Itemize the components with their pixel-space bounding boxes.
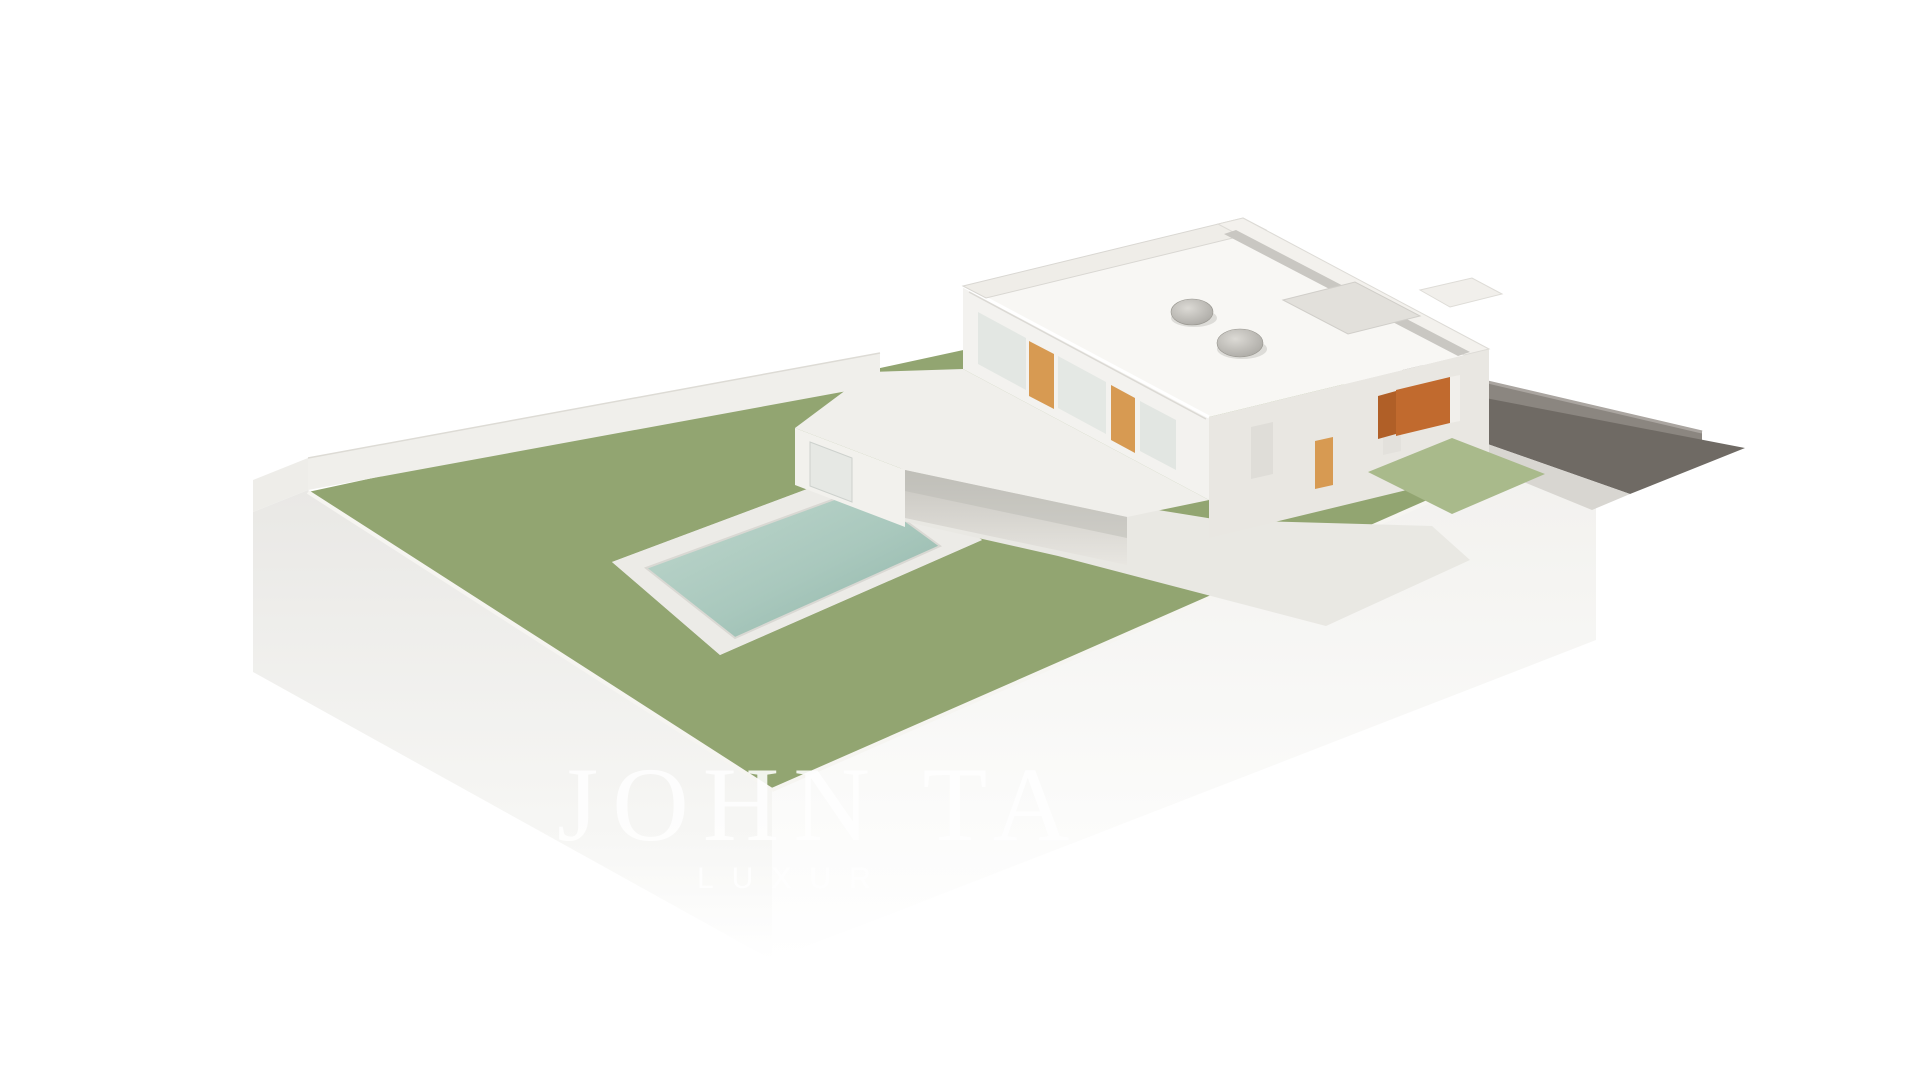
watermark-tagline: LUXUR xyxy=(697,862,889,895)
orange-gate-return xyxy=(1378,391,1396,439)
roof-dome-skylight-1 xyxy=(1171,299,1213,325)
villa-3d-render: JOHN TA LUXUR xyxy=(0,0,1920,1080)
architectural-render-canvas: JOHN TA LUXUR xyxy=(0,0,1920,1080)
roof-dome-skylight-2 xyxy=(1217,329,1263,357)
watermark-brand: JOHN TA xyxy=(557,746,1083,863)
right-facade-door xyxy=(1251,422,1273,479)
gate-pillar xyxy=(1450,375,1460,423)
roof-bulkhead xyxy=(1420,278,1502,307)
right-facade-orange-panel xyxy=(1315,437,1333,489)
